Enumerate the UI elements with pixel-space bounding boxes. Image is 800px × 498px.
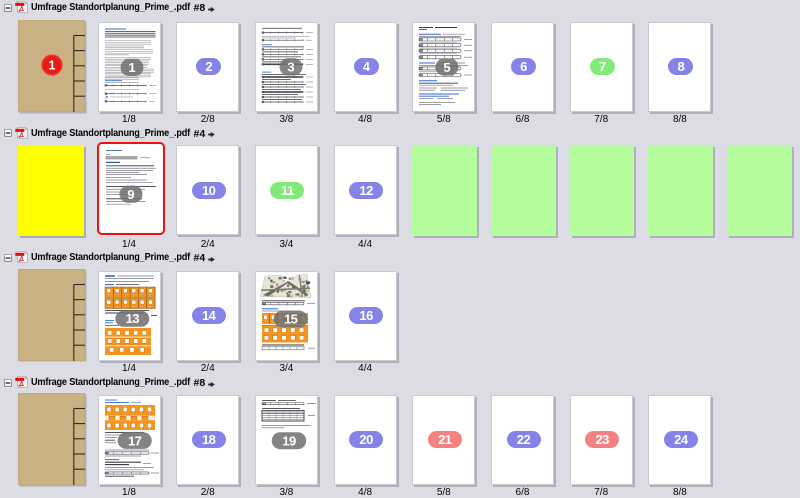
svg-text:15: 15	[284, 311, 298, 326]
svg-text:1: 1	[128, 59, 135, 74]
svg-text:19: 19	[282, 433, 296, 448]
svg-text:13: 13	[125, 311, 139, 326]
svg-text:9: 9	[127, 187, 134, 202]
svg-text:1: 1	[49, 58, 56, 72]
svg-text:5: 5	[444, 59, 451, 74]
svg-text:17: 17	[127, 433, 141, 448]
svg-text:3: 3	[287, 59, 294, 74]
